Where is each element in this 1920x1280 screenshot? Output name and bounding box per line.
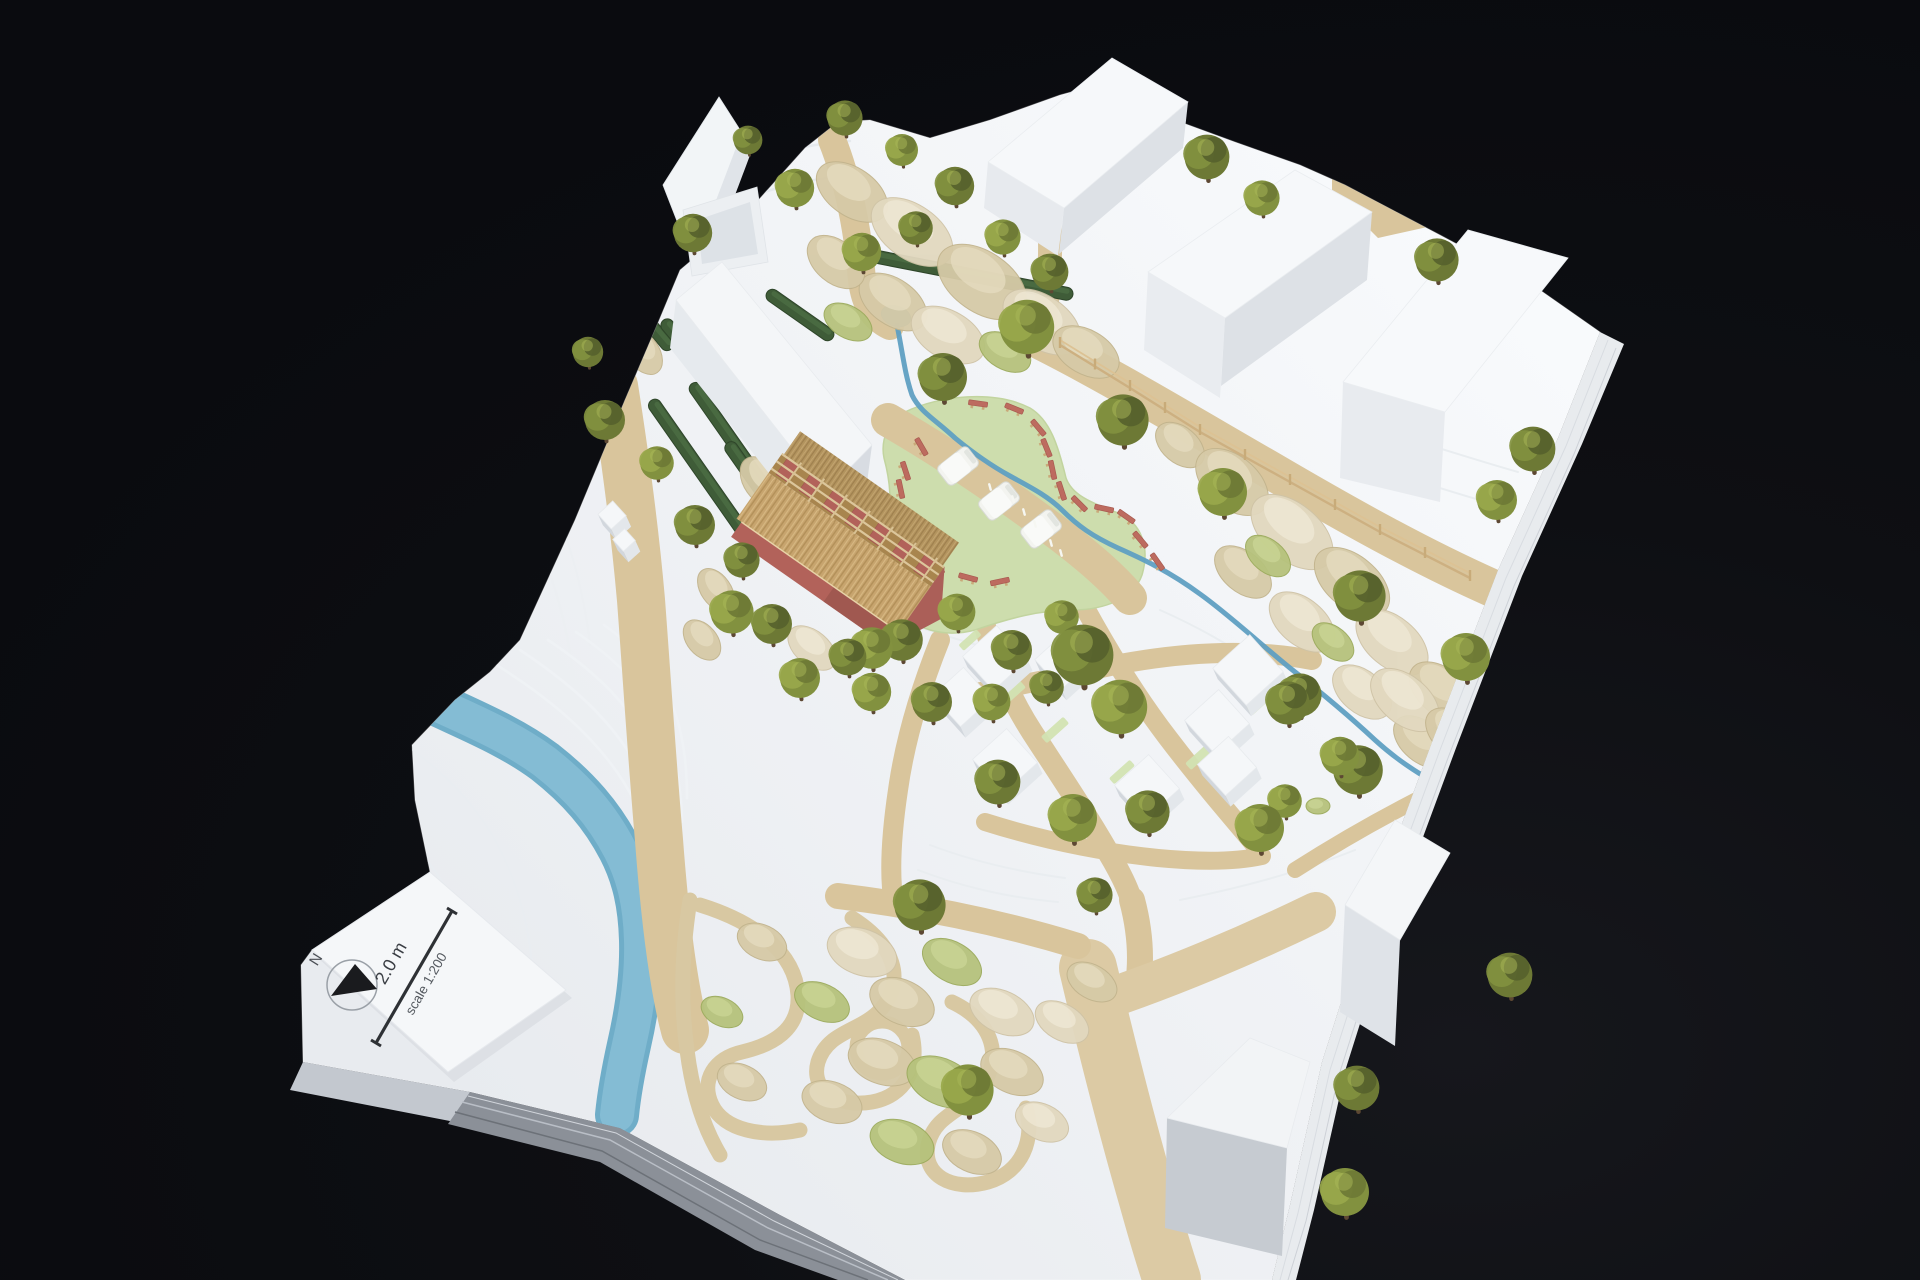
photo-stage: N 2.0 m scale 1:200 [0,0,1920,1280]
site-model-photo: N 2.0 m scale 1:200 [0,0,1920,1280]
lichen-patch [1306,798,1330,814]
